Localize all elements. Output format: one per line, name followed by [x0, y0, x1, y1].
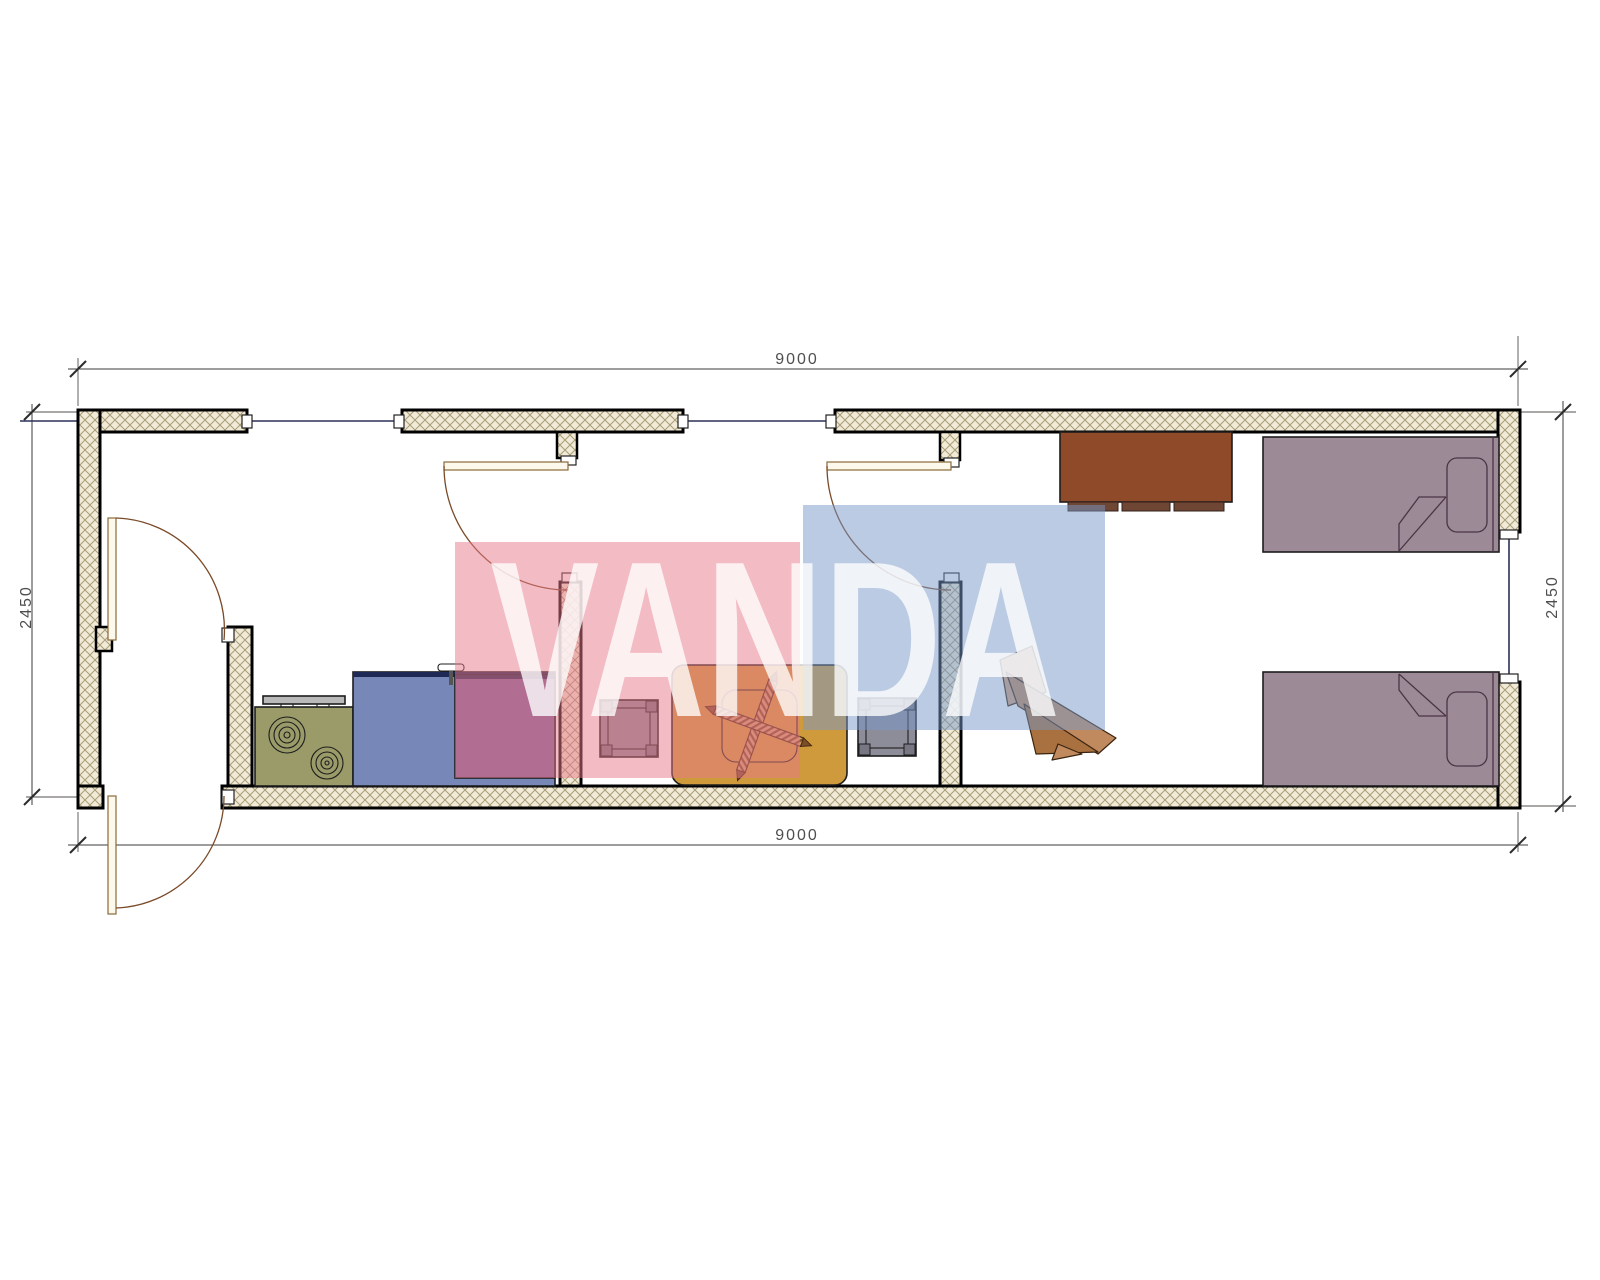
vestibule-door-swing: [116, 518, 224, 640]
dimension-left-label: 2450: [18, 585, 35, 629]
exterior-wall-top-left: [78, 410, 247, 432]
kitchen-door-leaf: [444, 462, 568, 470]
wardrobe-base-segment: [1122, 502, 1170, 511]
exterior-wall-bottom-corner: [78, 786, 103, 808]
partition-vestibule: [228, 627, 252, 786]
exterior-wall-right-lower: [1498, 682, 1520, 808]
bed-mattress: [1263, 437, 1499, 552]
partition-bedroom-stub: [940, 432, 960, 460]
dimension-top-label: 9000: [775, 351, 819, 368]
bed: [1263, 672, 1499, 786]
exterior-wall-top-right: [835, 410, 1520, 432]
exterior-wall-right-upper: [1498, 410, 1520, 532]
wardrobe-base-segment: [1174, 502, 1224, 511]
bedroom-door-leaf: [827, 462, 951, 470]
vestibule-door-leaf: [108, 518, 116, 640]
faucet-stem: [449, 671, 453, 685]
dimension-right-label: 2450: [1544, 575, 1561, 619]
exterior-wall-left: [78, 410, 100, 808]
watermark: VANDA: [455, 505, 1105, 778]
exterior-wall-top-middle: [402, 410, 683, 432]
window-sill: [1500, 530, 1518, 539]
wardrobe: [1060, 432, 1232, 502]
exterior-wall-bottom: [222, 786, 1520, 808]
entry-door-swing: [116, 796, 224, 908]
bed-mattress: [1263, 672, 1499, 786]
floor-plan-canvas: 9000 9000 2450 2450: [0, 0, 1600, 1280]
window-sill: [394, 415, 404, 428]
vent-shelf: [263, 696, 345, 704]
bed: [1263, 437, 1499, 552]
entry-door-leaf: [108, 796, 116, 914]
window-sill: [242, 415, 252, 428]
window-sill: [678, 415, 688, 428]
window-sill: [1500, 674, 1518, 683]
window-sill: [826, 415, 836, 428]
floor-plan-page: 9000 9000 2450 2450: [0, 0, 1600, 1280]
dimension-bottom-label: 9000: [775, 827, 819, 844]
watermark-text: VANDA: [490, 516, 1060, 764]
partition-kitchen-stub: [557, 432, 577, 458]
